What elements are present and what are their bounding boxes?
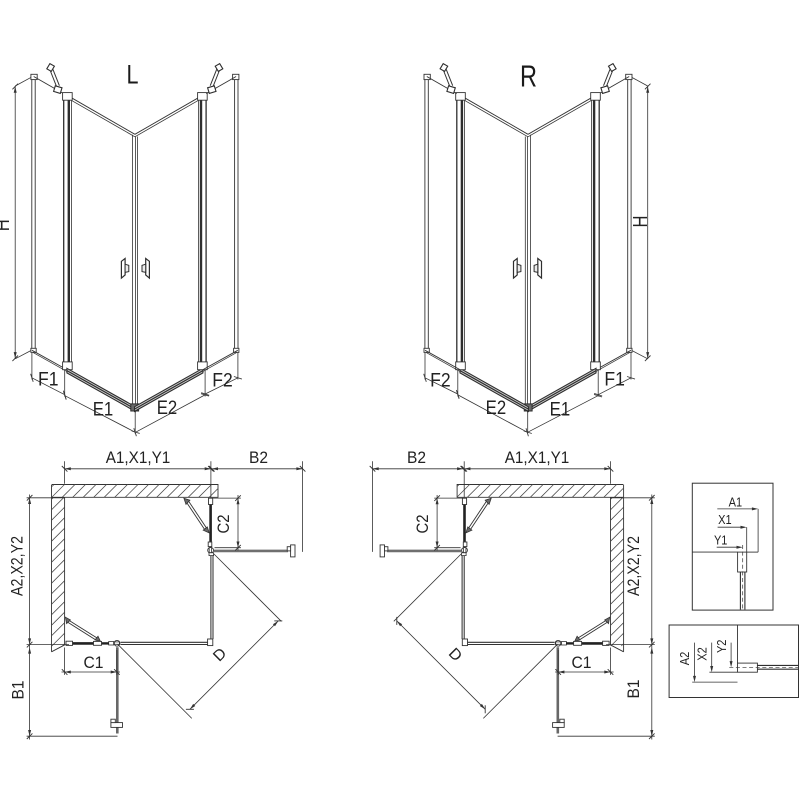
- svg-text:R: R: [520, 59, 537, 94]
- svg-text:X2: X2: [695, 647, 709, 661]
- svg-text:E1: E1: [93, 400, 114, 421]
- svg-text:F2: F2: [430, 371, 451, 392]
- svg-text:B2: B2: [249, 448, 268, 467]
- svg-text:A1: A1: [729, 496, 743, 510]
- svg-text:F1: F1: [38, 370, 59, 391]
- svg-text:F1: F1: [604, 370, 625, 391]
- svg-text:A1,X1,Y1: A1,X1,Y1: [505, 448, 570, 467]
- svg-text:H: H: [630, 216, 652, 228]
- svg-text:A2: A2: [678, 652, 692, 666]
- svg-text:Y2: Y2: [715, 640, 729, 654]
- svg-text:A1,X1,Y1: A1,X1,Y1: [106, 448, 171, 467]
- svg-text:E1: E1: [550, 400, 571, 421]
- svg-text:C1: C1: [84, 653, 104, 672]
- svg-text:B2: B2: [407, 448, 426, 467]
- svg-text:A2,X2,Y2: A2,X2,Y2: [624, 536, 643, 596]
- svg-text:X1: X1: [718, 513, 732, 527]
- svg-text:E2: E2: [486, 398, 507, 419]
- svg-text:A2,X2,Y2: A2,X2,Y2: [8, 536, 27, 596]
- svg-text:C2: C2: [413, 515, 432, 534]
- svg-text:C1: C1: [572, 653, 592, 672]
- svg-text:B1: B1: [9, 681, 28, 700]
- svg-text:B1: B1: [624, 680, 643, 699]
- svg-text:E2: E2: [157, 398, 178, 419]
- svg-text:Y1: Y1: [714, 534, 728, 548]
- svg-text:F2: F2: [212, 371, 233, 392]
- svg-text:L: L: [127, 60, 139, 90]
- svg-text:H: H: [0, 219, 14, 231]
- svg-text:C2: C2: [214, 515, 233, 534]
